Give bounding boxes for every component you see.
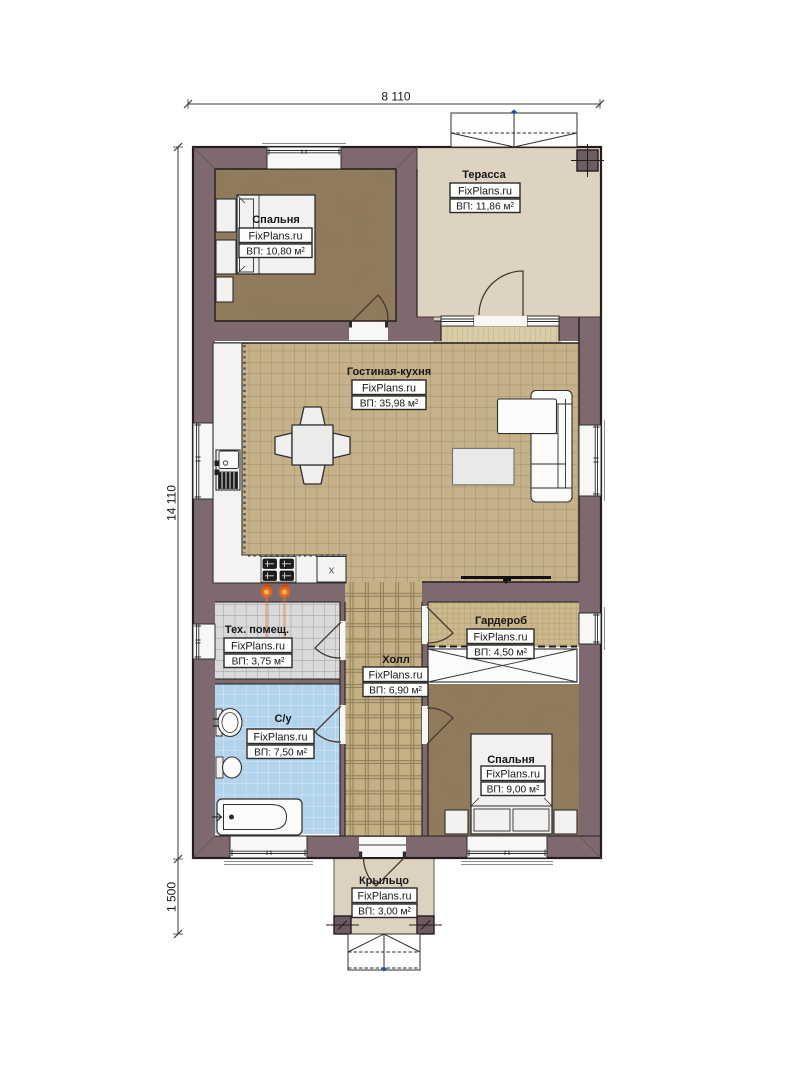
svg-text:Спальня: Спальня <box>252 214 300 226</box>
svg-text:FixPlans.ru: FixPlans.ru <box>458 186 512 198</box>
svg-text:FixPlans.ru: FixPlans.ru <box>253 732 307 744</box>
svg-text:FixPlans.ru: FixPlans.ru <box>357 891 411 903</box>
svg-text:ВП: 3,00 м²: ВП: 3,00 м² <box>358 907 411 918</box>
svg-text:ВП: 9,00 м²: ВП: 9,00 м² <box>487 785 540 796</box>
svg-text:1 500: 1 500 <box>165 882 179 912</box>
svg-text:ВП: 7,50 м²: ВП: 7,50 м² <box>254 748 307 759</box>
svg-text:FixPlans.ru: FixPlans.ru <box>231 641 285 653</box>
svg-text:Гардероб: Гардероб <box>475 615 527 627</box>
svg-text:FixPlans.ru: FixPlans.ru <box>368 670 422 682</box>
svg-text:Крыльцо: Крыльцо <box>359 875 409 887</box>
svg-text:Спальня: Спальня <box>487 754 535 766</box>
svg-text:x: x <box>329 565 335 577</box>
svg-text:ВП: 35,98 м²: ВП: 35,98 м² <box>360 399 419 410</box>
svg-text:14 110: 14 110 <box>165 485 179 521</box>
svg-text:FixPlans.ru: FixPlans.ru <box>473 632 527 644</box>
svg-text:Гостиная-кухня: Гостиная-кухня <box>347 366 431 378</box>
svg-text:ВП: 10,80 м²: ВП: 10,80 м² <box>246 247 305 258</box>
svg-text:FixPlans.ru: FixPlans.ru <box>486 769 540 781</box>
svg-text:FixPlans.ru: FixPlans.ru <box>248 231 302 243</box>
svg-text:Холл: Холл <box>382 654 410 666</box>
svg-text:8 110: 8 110 <box>381 90 410 104</box>
svg-text:ВП: 6,90 м²: ВП: 6,90 м² <box>369 686 422 697</box>
svg-text:ВП: 4,50 м²: ВП: 4,50 м² <box>474 648 527 659</box>
svg-text:С/у: С/у <box>274 713 292 725</box>
svg-text:ВП: 3,75 м²: ВП: 3,75 м² <box>232 657 285 668</box>
svg-text:Тех. помещ.: Тех. помещ. <box>225 624 289 636</box>
svg-text:FixPlans.ru: FixPlans.ru <box>362 383 416 395</box>
svg-text:Терасса: Терасса <box>462 169 506 181</box>
svg-text:ВП: 11,86 м²: ВП: 11,86 м² <box>456 202 514 213</box>
